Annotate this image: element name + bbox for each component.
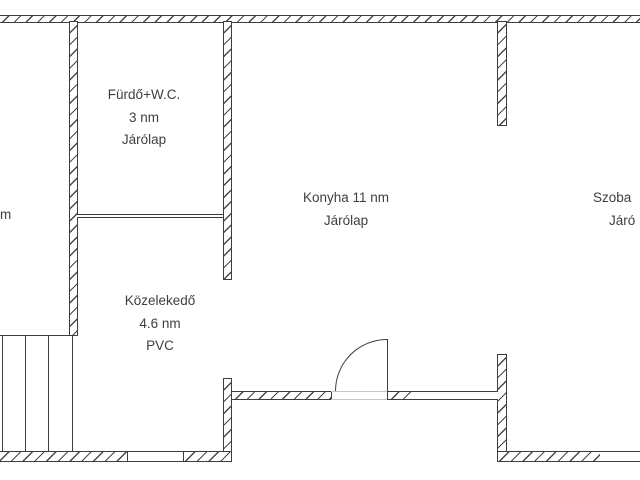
room-floor: PVC (84, 335, 236, 358)
room-label-text: m (0, 204, 24, 227)
wall-bottom-right (497, 451, 601, 462)
wall-kitchen-room-divider-upper (497, 21, 507, 126)
room-label-right-room: Szoba Járó (593, 187, 640, 232)
wall-bottom-left-2 (183, 451, 232, 462)
wall-bathroom-partition (77, 214, 223, 218)
wall-kitchen-room-divider-lower (497, 354, 507, 462)
wall-bathroom-right-upper (223, 21, 233, 280)
wall-bottom-left (0, 451, 128, 462)
room-label-hallway: Közelekedő 4.6 nm PVC (84, 290, 236, 358)
room-area: 4.6 nm (84, 313, 236, 336)
room-name: Szoba (593, 187, 640, 210)
stair-tread-line (72, 335, 73, 452)
floor-plan-canvas: m Fürdő+W.C. 3 nm Járólap Konyha 11 nm J… (0, 0, 640, 480)
room-name: Közelekedő (84, 290, 236, 313)
room-floor: Járólap (262, 210, 430, 233)
wall-kitchen-bottom-right (387, 391, 414, 400)
wall-kitchen-bottom-left (231, 391, 332, 400)
stair-tread-line (48, 335, 49, 452)
room-name: Konyha 11 nm (262, 187, 430, 210)
window-bottom-left (128, 451, 183, 462)
room-floor: Járó (593, 210, 640, 233)
room-area: 3 nm (78, 107, 210, 130)
stair-tread-line (2, 335, 3, 452)
room-name: Fürdő+W.C. (78, 84, 210, 107)
room-floor: Járólap (78, 129, 210, 152)
stairs-top-edge (0, 335, 73, 336)
window-kitchen-bottom (413, 391, 498, 400)
room-label-bathroom: Fürdő+W.C. 3 nm Járólap (78, 84, 210, 152)
door-threshold (331, 391, 387, 400)
wall-bathroom-left (69, 21, 78, 336)
stair-tread-line (25, 335, 26, 452)
door-swing-arc (335, 339, 387, 391)
room-label-left-room: m (0, 204, 24, 227)
room-label-kitchen: Konyha 11 nm Járólap (262, 187, 430, 232)
window-bottom-right (600, 451, 640, 462)
wall-top (0, 15, 640, 23)
